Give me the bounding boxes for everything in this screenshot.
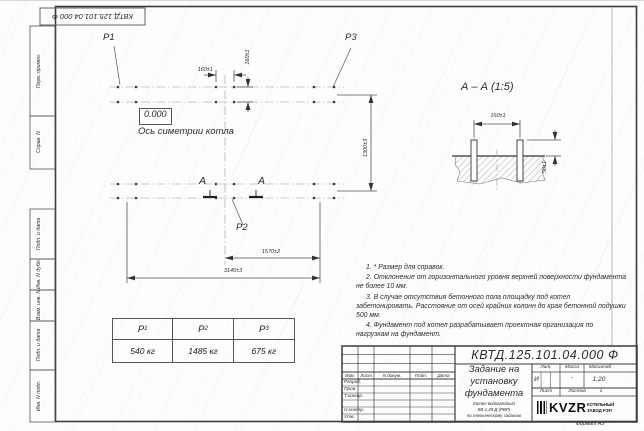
p3-sub: 3 bbox=[265, 326, 268, 332]
dim-160-plan-horizontal: 160±1 bbox=[187, 67, 213, 73]
plan-view bbox=[110, 46, 377, 283]
rev-col-podp: Подп. bbox=[410, 373, 432, 378]
margin-label-sprav-n: Справ. N bbox=[37, 102, 47, 182]
section-cut-marks bbox=[203, 190, 263, 197]
margin-label-inv-podl: Инв. N подл. bbox=[37, 356, 47, 431]
anchor-bolts-plan bbox=[117, 86, 336, 200]
rev-col-data: Дата bbox=[432, 373, 455, 378]
title-block-doc-number: КВТД.125.101.04.000 Ф bbox=[457, 347, 633, 363]
dim-3145: 3145±3 bbox=[203, 268, 263, 274]
mass-label: Масса bbox=[560, 365, 584, 370]
margin-label-perv-primen: Перв. примен. bbox=[37, 31, 47, 111]
doc-number-stamp: КВТД.125.101.04.000 Ф bbox=[40, 8, 145, 25]
role-tkontr: Т.контр. bbox=[344, 394, 363, 399]
kvzr-caption-line-2: ЗАВОД РЭП bbox=[587, 409, 612, 414]
load-table-header-p3: P3 bbox=[234, 319, 294, 340]
level-mark-box: 0.000 bbox=[139, 108, 172, 125]
rev-col-ndoc: N докум. bbox=[374, 373, 410, 378]
doc-title-line-3: фундамента bbox=[456, 389, 532, 399]
doc-subtitle-line-3: по техническому заданию bbox=[456, 414, 532, 419]
note-3: 3. В случае отсутствия бетонного пола пл… bbox=[356, 293, 628, 321]
notes-block: 1. * Размер для справок. 2. Отклонение о… bbox=[356, 263, 628, 341]
doc-title-line-1: Задание на bbox=[456, 365, 532, 375]
section-letter-left: А bbox=[199, 176, 206, 188]
format-label: Формат А3 bbox=[553, 422, 627, 428]
load-label-p3: P3 bbox=[345, 33, 357, 43]
role-prov: Пров. bbox=[344, 387, 357, 392]
kvzr-logo-icon bbox=[537, 401, 547, 414]
section-letter-right: А bbox=[258, 176, 265, 188]
dim-1300: 1300±3 bbox=[363, 133, 371, 163]
load-value-p1: 540 кг bbox=[113, 340, 173, 362]
load-table-header-p2: P2 bbox=[173, 319, 233, 340]
scale-label: Масштаб bbox=[584, 365, 616, 370]
p2-sub: 2 bbox=[204, 326, 207, 332]
lit-value: И bbox=[532, 372, 541, 388]
role-razrab: Разраб. bbox=[344, 380, 361, 385]
dim-50-section: 50±1 bbox=[542, 154, 550, 180]
note-1: 1. * Размер для справок. bbox=[356, 263, 628, 272]
load-label-p1: P1 bbox=[103, 33, 115, 43]
lit-label: Лит. bbox=[532, 365, 560, 370]
drawing-sheet: КВТД.125.101.04.000 Ф Перв. примен. Спра… bbox=[0, 0, 644, 431]
boiler-symmetry-axis-label: Ось симетрии котла bbox=[138, 127, 234, 137]
sheets-label: Листов bbox=[560, 389, 594, 394]
kvzr-caption-line-1: КОТЕЛЬНЫЙ bbox=[587, 403, 614, 408]
section-view-title: А – А (1:5) bbox=[461, 81, 514, 93]
dim-160-plan-vertical: 160±1 bbox=[245, 44, 253, 70]
anchor-bolt-section bbox=[471, 140, 477, 181]
concrete-hatch bbox=[455, 156, 546, 184]
dim-160-section: 160±1 bbox=[476, 113, 520, 119]
rev-col-izm: Изм. bbox=[342, 373, 358, 378]
role-nkontr: Н.контр. bbox=[344, 408, 364, 413]
dim-1570: 1570±2 bbox=[248, 249, 294, 255]
note-4: 4. Фундамент под котел разрабатывает про… bbox=[356, 321, 628, 339]
load-table: P1 P2 P3 540 кг 1485 кг 675 кг bbox=[112, 318, 295, 363]
sheets-value: 1 bbox=[594, 389, 608, 394]
mass-value: - bbox=[560, 374, 584, 381]
load-label-p2: P2 bbox=[236, 223, 248, 233]
scale-value: 1:20 bbox=[584, 372, 614, 388]
note-2: 2. Отклонение от горизонтального уровня … bbox=[356, 273, 628, 291]
load-value-p3: 675 кг bbox=[234, 340, 294, 362]
level-mark: 0.000 bbox=[144, 110, 167, 120]
load-table-header-p1: P1 bbox=[113, 319, 173, 340]
p1-sub: 1 bbox=[144, 326, 147, 332]
role-utv: Утв. bbox=[344, 415, 355, 420]
sheet-label: Лист bbox=[532, 389, 560, 394]
doc-title-line-2: установку bbox=[456, 377, 532, 387]
rev-col-list: Лист bbox=[358, 373, 374, 378]
load-value-p2: 1485 кг bbox=[173, 340, 233, 362]
kvzr-logo-text: KVZR bbox=[549, 401, 586, 415]
anchor-bolt-section bbox=[517, 140, 523, 181]
